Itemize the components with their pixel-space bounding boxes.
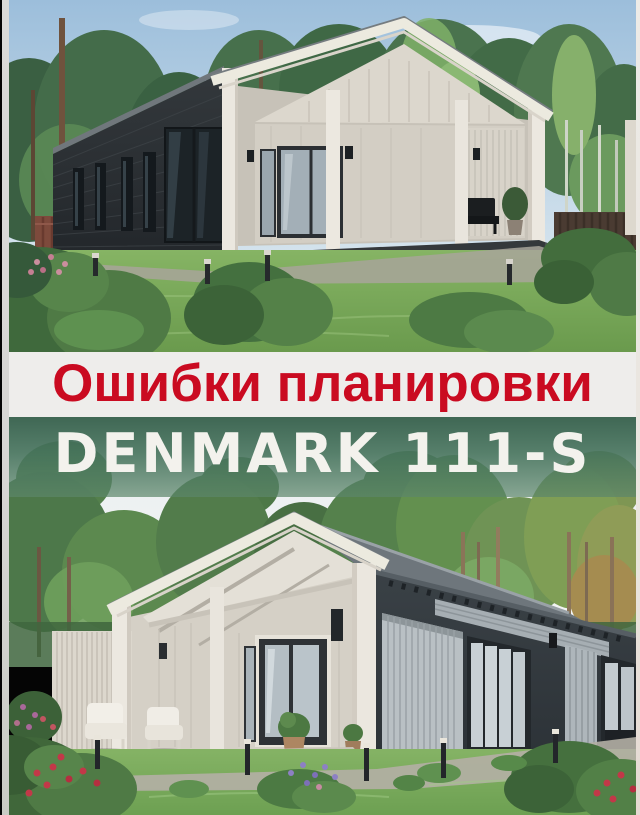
top-house-photo xyxy=(9,0,636,352)
wall-lamp xyxy=(159,643,167,659)
picture-window xyxy=(165,128,223,242)
wall-lamp xyxy=(247,150,254,162)
title-band: Ошибки планировки xyxy=(9,352,636,417)
wall-lamp xyxy=(473,148,480,160)
wall-lamp xyxy=(331,609,343,641)
sliding-glass-door xyxy=(467,636,531,751)
wall-lamp xyxy=(345,146,353,159)
title-text: Ошибки планировки xyxy=(52,357,593,410)
wall-lamp xyxy=(549,633,557,648)
model-band: DENMARK 111-S xyxy=(9,417,636,497)
model-text: DENMARK 111-S xyxy=(54,427,592,481)
video-cover: Ошибки планировки DENMARK 111-S xyxy=(0,0,640,815)
right-frame-edge xyxy=(636,0,640,815)
left-frame-edge xyxy=(2,0,9,815)
top-house-scene xyxy=(9,0,636,352)
side-slat-panel xyxy=(625,120,636,235)
